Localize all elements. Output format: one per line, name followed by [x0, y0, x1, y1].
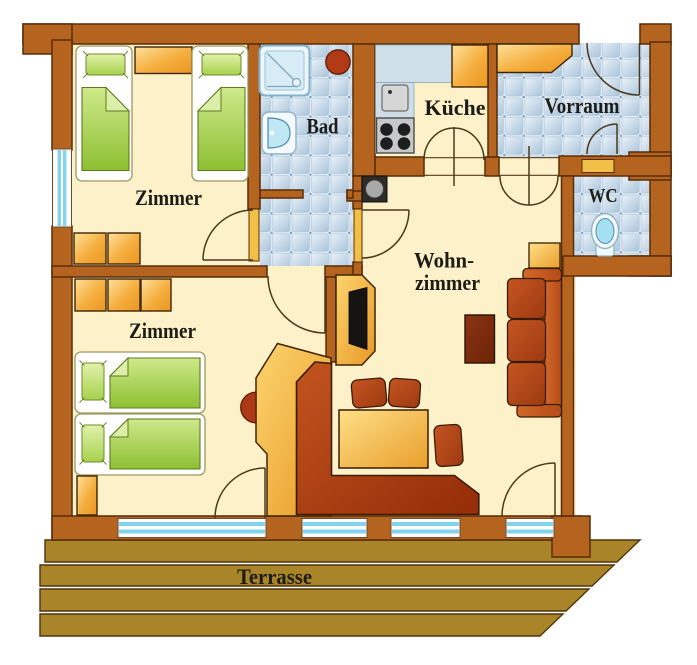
svg-text:Vorraum: Vorraum [545, 93, 620, 118]
svg-text:Zimmer: Zimmer [129, 318, 196, 343]
svg-text:Wohn-: Wohn- [414, 248, 474, 273]
svg-text:Zimmer: Zimmer [135, 185, 202, 210]
svg-text:Terrasse: Terrasse [237, 564, 312, 589]
svg-text:WC: WC [589, 185, 618, 207]
svg-text:Küche: Küche [425, 95, 486, 120]
svg-text:zimmer: zimmer [415, 270, 480, 295]
svg-text:Bad: Bad [307, 114, 339, 139]
